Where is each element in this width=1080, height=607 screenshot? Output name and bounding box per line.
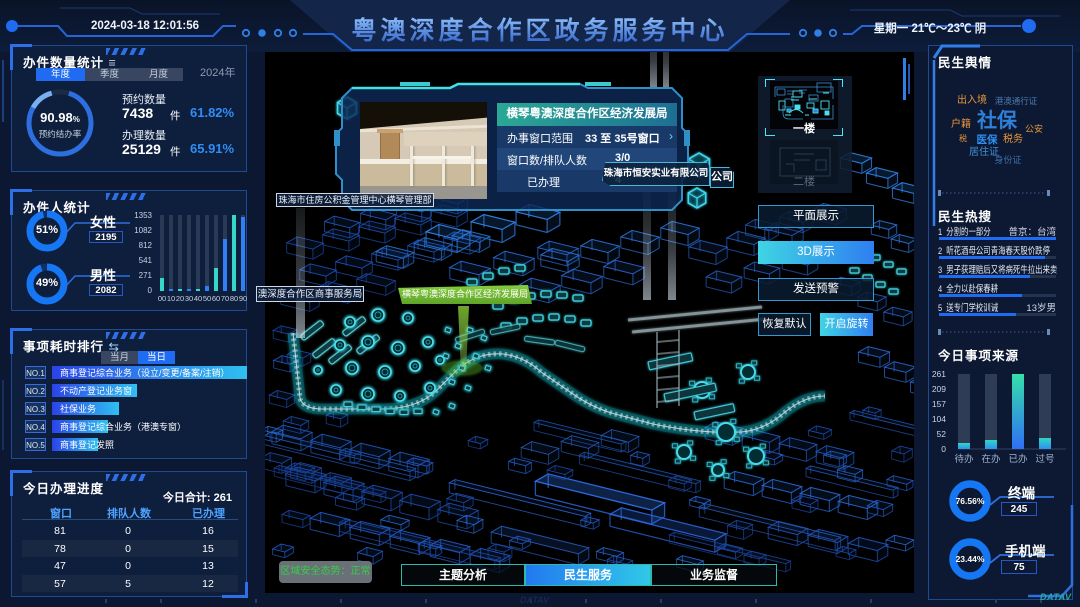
svg-text:812: 812 [139,241,153,250]
svg-text:税务: 税务 [1003,132,1023,145]
svg-text:已办: 已办 [1008,453,1028,465]
svg-text:70: 70 [221,294,229,303]
svg-text:80: 80 [230,294,238,303]
svg-text:0: 0 [941,444,946,454]
svg-text:身份证: 身份证 [994,154,1021,165]
svg-text:社保: 社保 [976,108,1018,132]
svg-text:40: 40 [194,294,202,303]
svg-text:271: 271 [139,271,153,280]
svg-text:541: 541 [139,256,153,265]
svg-text:1353: 1353 [134,211,152,220]
svg-text:52: 52 [937,429,947,439]
svg-text:港澳通行证: 港澳通行证 [995,96,1038,106]
svg-text:过号: 过号 [1035,453,1054,465]
svg-text:90: 90 [239,294,247,303]
svg-text:00: 00 [158,294,166,303]
svg-text:104: 104 [932,414,946,424]
svg-text:税: 税 [959,133,967,143]
svg-text:30: 30 [185,294,193,303]
svg-text:1082: 1082 [134,226,152,235]
svg-text:医保: 医保 [977,133,998,146]
svg-text:在办: 在办 [981,453,1001,465]
svg-text:待办: 待办 [954,453,974,465]
svg-text:50: 50 [203,294,211,303]
svg-text:60: 60 [212,294,220,303]
svg-text:0: 0 [148,286,153,295]
svg-text:户籍: 户籍 [951,117,971,130]
svg-text:261: 261 [932,369,946,379]
svg-text:20: 20 [176,294,184,303]
svg-text:157: 157 [932,399,946,409]
svg-text:209: 209 [932,384,946,394]
svg-text:10: 10 [167,294,175,303]
svg-text:公安: 公安 [1025,123,1043,134]
svg-text:出入境: 出入境 [957,93,987,106]
